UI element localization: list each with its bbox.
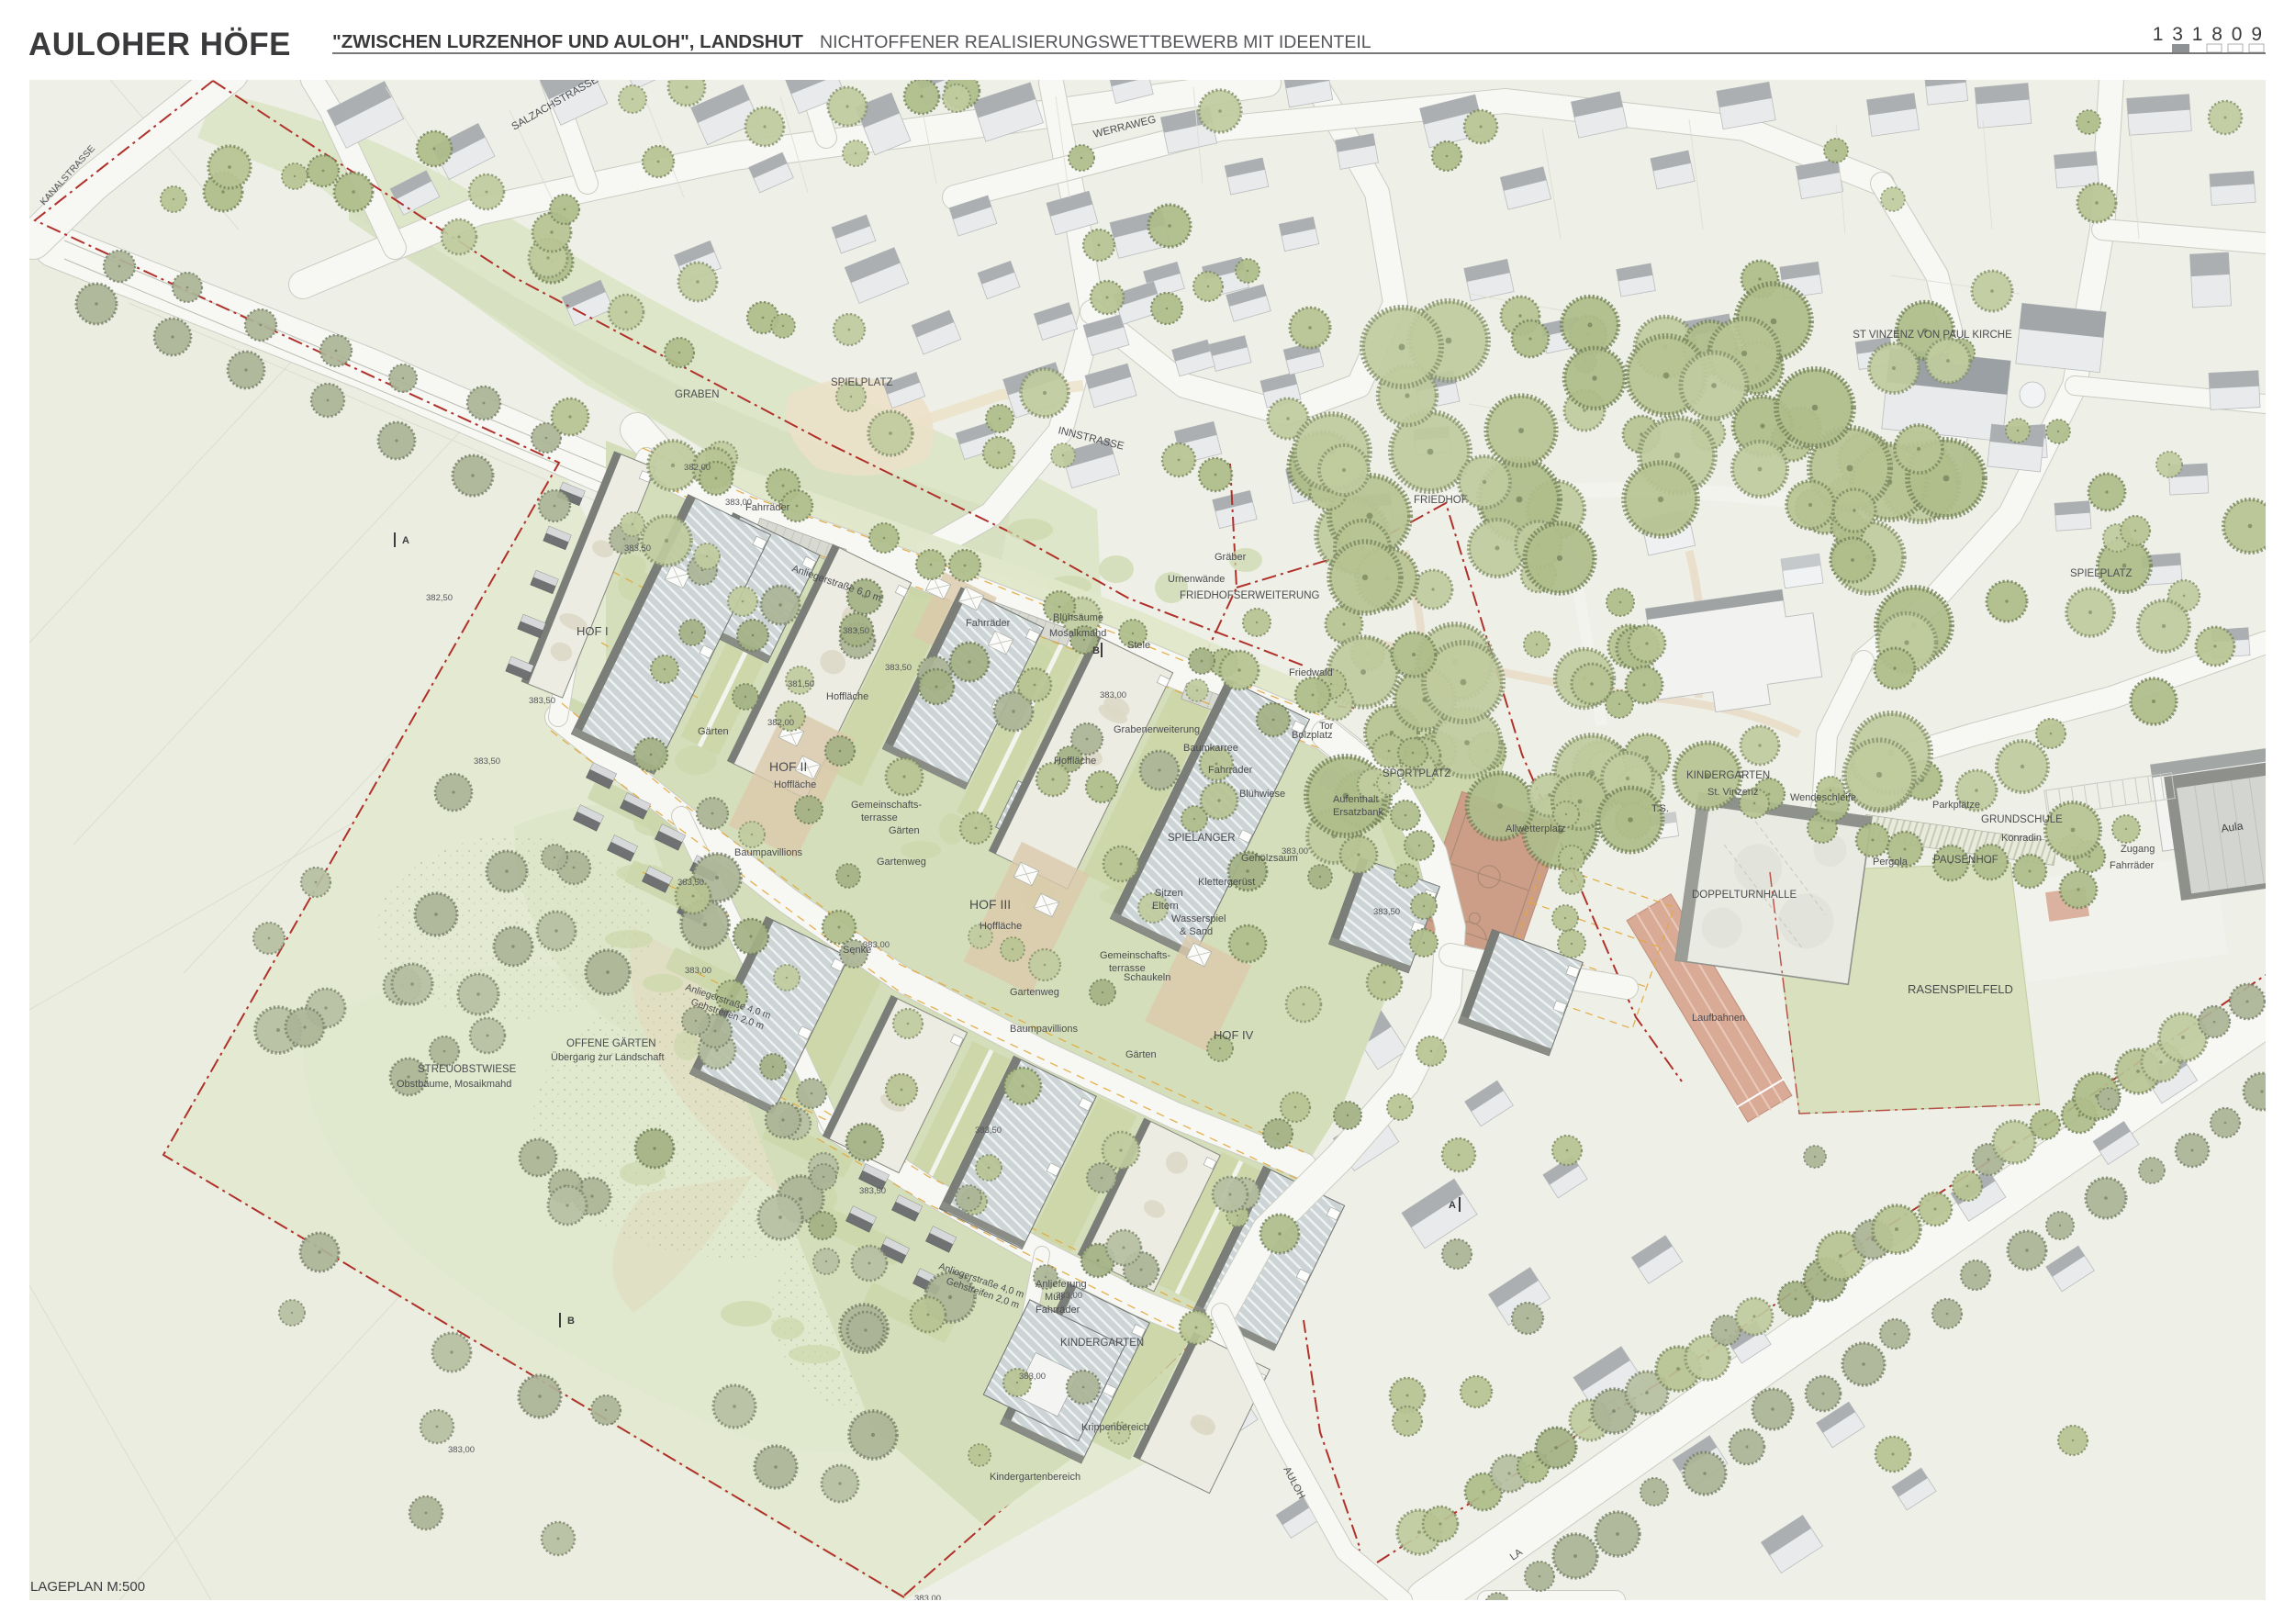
svg-text:B: B [1092, 645, 1100, 656]
svg-text:Gärten: Gärten [889, 825, 920, 836]
svg-text:Bolzplatz: Bolzplatz [1292, 730, 1333, 741]
svg-text:Gräber: Gräber [1215, 552, 1247, 563]
svg-text:A: A [1449, 1200, 1456, 1211]
svg-text:Krippenbereich: Krippenbereich [1081, 1422, 1149, 1433]
svg-text:Anlieferung: Anlieferung [1036, 1279, 1087, 1290]
svg-text:383,00: 383,00 [448, 1445, 475, 1455]
svg-text:382,00: 382,00 [767, 718, 794, 728]
svg-text:Hoffläche: Hoffläche [980, 921, 1022, 932]
svg-text:383,50: 383,50 [474, 756, 500, 767]
svg-text:GRABEN: GRABEN [675, 389, 720, 400]
svg-text:Gemeinschafts-: Gemeinschafts- [851, 800, 922, 811]
svg-text:Stele: Stele [1127, 640, 1150, 651]
svg-text:Mosaikmahd: Mosaikmahd [1049, 628, 1106, 639]
svg-text:Fahrräder: Fahrräder [1208, 765, 1253, 776]
svg-text:Gartenweg: Gartenweg [877, 857, 926, 868]
svg-text:Hoffläche: Hoffläche [1054, 756, 1096, 767]
svg-text:SPIELPLATZ: SPIELPLATZ [831, 377, 893, 388]
svg-text:Fahrräder: Fahrräder [2110, 860, 2155, 871]
svg-text:Übergang zur Landschaft: Übergang zur Landschaft [551, 1052, 665, 1063]
svg-text:terrasse: terrasse [1109, 963, 1146, 974]
svg-text:383,00: 383,00 [1019, 1372, 1046, 1382]
svg-text:B: B [567, 1316, 575, 1327]
svg-text:St. Vinzenz: St. Vinzenz [1707, 787, 1758, 798]
svg-text:Fahrräder: Fahrräder [966, 618, 1011, 629]
svg-text:Obstbäume, Mosaikmahd: Obstbäume, Mosaikmahd [397, 1079, 511, 1090]
svg-text:SPIELPLATZ: SPIELPLATZ [2070, 568, 2133, 579]
svg-text:Wendeschleife: Wendeschleife [1790, 792, 1856, 803]
svg-text:Wasserspiel: Wasserspiel [1171, 913, 1226, 924]
svg-text:Blühsäume: Blühsäume [1053, 612, 1103, 623]
svg-text:Gärten: Gärten [698, 726, 729, 737]
svg-text:NICHTOFFENER REALISIERUNGSWETT: NICHTOFFENER REALISIERUNGSWETTBEWERB MIT… [820, 32, 1371, 52]
svg-text:383,50: 383,50 [1373, 907, 1400, 917]
svg-text:LAGEPLAN M:500: LAGEPLAN M:500 [30, 1579, 145, 1595]
svg-text:383,50: 383,50 [859, 1186, 886, 1196]
svg-text:A: A [402, 535, 409, 546]
svg-text:RASENSPIELFELD: RASENSPIELFELD [1908, 982, 2013, 996]
svg-text:383,00: 383,00 [1100, 690, 1126, 700]
svg-text:Aufenthalt: Aufenthalt [1333, 794, 1379, 805]
svg-text:HOF IV: HOF IV [1214, 1028, 1254, 1042]
svg-text:383,50: 383,50 [529, 696, 555, 706]
svg-text:383,50: 383,50 [677, 878, 704, 888]
svg-text:Blühwiese: Blühwiese [1239, 789, 1285, 800]
svg-text:SPIELANGER: SPIELANGER [1168, 833, 1236, 844]
svg-text:"ZWISCHEN LURZENHOF UND AULOH": "ZWISCHEN LURZENHOF UND AULOH", LANDSHUT [332, 31, 803, 52]
svg-text:382,00: 382,00 [684, 463, 711, 473]
svg-text:terrasse: terrasse [861, 812, 898, 823]
svg-text:Baumpavillions: Baumpavillions [1010, 1024, 1078, 1035]
svg-text:Zugang: Zugang [2121, 844, 2155, 855]
svg-text:Gemeinschafts-: Gemeinschafts- [1100, 950, 1170, 961]
svg-text:Allwetterplatz: Allwetterplatz [1506, 823, 1565, 834]
svg-text:OFFENE GÄRTEN: OFFENE GÄRTEN [566, 1038, 656, 1049]
svg-text:Pergola: Pergola [1873, 857, 1909, 868]
svg-text:Sitzen: Sitzen [1155, 888, 1183, 899]
svg-text:Eltern: Eltern [1152, 901, 1179, 912]
svg-text:GRUNDSCHULE: GRUNDSCHULE [1981, 814, 2063, 825]
svg-text:AULOHER HÖFE: AULOHER HÖFE [28, 27, 291, 62]
svg-text:Fahrräder: Fahrräder [745, 502, 790, 513]
svg-text:Parkplätze: Parkplätze [1932, 800, 1980, 811]
svg-text:383,00: 383,00 [1282, 846, 1308, 857]
svg-text:381,50: 381,50 [788, 679, 814, 689]
svg-text:STREUOBSTWIESE: STREUOBSTWIESE [418, 1064, 517, 1075]
svg-text:Gärten: Gärten [1125, 1049, 1157, 1060]
svg-text:382,50: 382,50 [426, 593, 453, 603]
svg-text:FRIEDHOFSERWEITERUNG: FRIEDHOFSERWEITERUNG [1180, 590, 1320, 601]
svg-text:Fahrräder: Fahrräder [1036, 1305, 1080, 1316]
svg-text:Urnenwände: Urnenwände [1168, 574, 1225, 585]
svg-text:383,50: 383,50 [885, 663, 912, 673]
svg-text:FRIEDHOF: FRIEDHOF [1414, 495, 1468, 506]
svg-text:383,50: 383,50 [843, 626, 869, 636]
svg-text:Hoffläche: Hoffläche [826, 691, 868, 702]
svg-text:Baumkarree: Baumkarree [1183, 743, 1238, 754]
svg-text:ST VINZENZ VON PAUL KIRCHE: ST VINZENZ VON PAUL KIRCHE [1853, 330, 2012, 341]
svg-text:KINDERGARTEN: KINDERGARTEN [1060, 1338, 1144, 1349]
svg-text:383,00: 383,00 [1056, 1291, 1082, 1301]
svg-text:Ersatzbank: Ersatzbank [1333, 807, 1384, 818]
svg-text:PAUSENHOF: PAUSENHOF [1933, 855, 1998, 866]
svg-text:DOPPELTURNHALLE: DOPPELTURNHALLE [1692, 890, 1797, 901]
svg-text:Friedwald: Friedwald [1289, 667, 1333, 678]
svg-text:HOF III: HOF III [969, 897, 1011, 912]
svg-text:HOF II: HOF II [769, 759, 807, 774]
svg-text:383,00: 383,00 [863, 940, 890, 950]
svg-text:Klettergerüst: Klettergerüst [1198, 877, 1255, 888]
svg-text:383,00: 383,00 [725, 498, 752, 508]
svg-text:Gartenweg: Gartenweg [1010, 987, 1059, 998]
svg-text:SPORTPLATZ: SPORTPLATZ [1383, 768, 1450, 779]
svg-text:1 3 1 8 0 9: 1 3 1 8 0 9 [2153, 24, 2264, 45]
svg-text:383,50: 383,50 [624, 543, 651, 554]
svg-text:Hoffläche: Hoffläche [774, 779, 816, 790]
svg-text:383,50: 383,50 [975, 1126, 1002, 1136]
svg-text:383,00: 383,00 [685, 966, 711, 976]
svg-text:HOF I: HOF I [577, 624, 609, 638]
svg-text:Laufbahnen: Laufbahnen [1692, 1013, 1745, 1024]
svg-text:T.S.: T.S. [1651, 803, 1669, 814]
svg-text:Grabenerweiterung: Grabenerweiterung [1114, 724, 1200, 735]
svg-text:Konradin: Konradin [2001, 833, 2042, 844]
svg-text:& Sand: & Sand [1180, 926, 1213, 937]
svg-text:Kindergartenbereich: Kindergartenbereich [990, 1472, 1080, 1483]
svg-text:Baumpavillions: Baumpavillions [734, 847, 802, 858]
svg-text:KINDERGARTEN: KINDERGARTEN [1686, 770, 1770, 781]
